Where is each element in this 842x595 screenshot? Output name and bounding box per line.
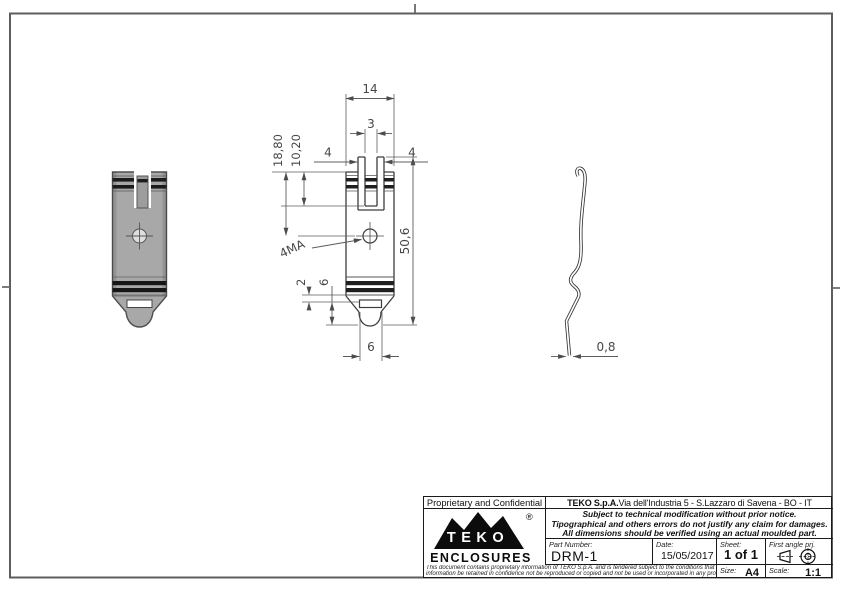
- fine-print-line: information be retained in confidence no…: [426, 571, 714, 577]
- company-name: TEKO S.p.A.: [567, 498, 618, 508]
- date-cell: Date: 15/05/2017: [653, 539, 717, 565]
- spring-profile-outer: [567, 168, 586, 355]
- dim-top-width: 14: [362, 82, 377, 96]
- proprietary-note: Proprietary and Confidential: [424, 497, 546, 509]
- company-line: TEKO S.p.A. Via dell'Industria 5 - S.Laz…: [546, 497, 833, 509]
- sheet-value: 1 of 1: [717, 547, 765, 562]
- bottom-slot: [127, 300, 152, 308]
- logo-cell: TEKO ® ENCLOSURES: [424, 509, 546, 565]
- part-number-value: DRM-1: [551, 548, 598, 564]
- teko-logo: TEKO ® ENCLOSURES: [427, 509, 543, 565]
- logo-subtitle: ENCLOSURES: [430, 551, 532, 565]
- dim-slot-height: 6: [317, 279, 331, 286]
- dim-right-offset: 4: [408, 146, 416, 160]
- lower-ribs: [346, 281, 394, 292]
- scale-cell: Scale: 1:1: [766, 565, 833, 577]
- dim-left-offset: 4: [324, 146, 332, 160]
- dim-slot-width: 3: [367, 117, 375, 131]
- date-value: 15/05/2017: [661, 550, 714, 562]
- sheet-cell: Sheet: 1 of 1: [717, 539, 766, 565]
- dim-rib-height: 2: [294, 279, 308, 286]
- logo-registered-mark: ®: [526, 512, 533, 522]
- shaded-view: [113, 171, 167, 328]
- top-ribs: [346, 178, 394, 189]
- drawing-sheet: 14 3 4 4 18,80 10,20 50,6 4MA 2 6 6 0,8 …: [0, 0, 842, 595]
- dim-depth-slot: 10,20: [289, 134, 303, 167]
- dimension-labels: 14 3 4 4 18,80 10,20 50,6 4MA 2 6 6 0,8: [271, 82, 616, 354]
- front-view: [346, 157, 394, 326]
- disclaimer-notice: Subject to technical modification withou…: [546, 509, 833, 539]
- dim-thickness: 0,8: [596, 340, 615, 354]
- dim-bottom-width: 6: [367, 340, 375, 354]
- size-label: Size:: [720, 566, 736, 575]
- notice-line: All dimensions should be verified using …: [546, 529, 833, 539]
- dim-total-height: 50,6: [398, 228, 412, 255]
- first-angle-projection-icon: [776, 548, 822, 565]
- logo-brand: TEKO: [446, 530, 508, 546]
- dimensions: [272, 94, 428, 361]
- size-cell: Size: A4: [717, 565, 766, 577]
- scale-value: 1:1: [805, 567, 821, 579]
- part-number-cell: Part Number: DRM-1: [546, 539, 653, 565]
- title-block: Proprietary and Confidential TEKO S.p.A.…: [423, 496, 832, 578]
- dim-thread-callout: 4MA: [277, 237, 307, 261]
- projection-cell: First angle prj.: [766, 539, 833, 565]
- side-profile-view: [551, 168, 618, 356]
- bottom-slot: [360, 300, 382, 308]
- size-value: A4: [745, 567, 759, 579]
- fine-print: This document contains proprietary infor…: [424, 565, 717, 577]
- dim-depth-hole: 18,80: [271, 134, 285, 167]
- date-label: Date:: [656, 540, 673, 549]
- company-address: Via dell'Industria 5 - S.Lazzaro di Save…: [619, 498, 812, 508]
- scale-label: Scale:: [769, 566, 789, 575]
